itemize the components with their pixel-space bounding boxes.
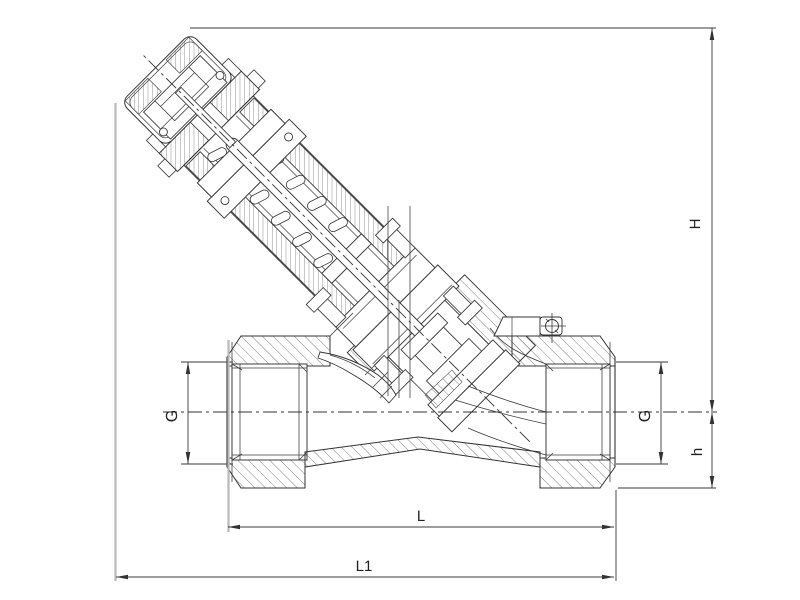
svg-text:G: G: [164, 410, 181, 422]
svg-text:G: G: [637, 410, 654, 422]
svg-text:H: H: [687, 219, 704, 230]
svg-text:L: L: [417, 508, 425, 525]
svg-text:h: h: [689, 448, 706, 456]
svg-text:L1: L1: [356, 558, 373, 575]
